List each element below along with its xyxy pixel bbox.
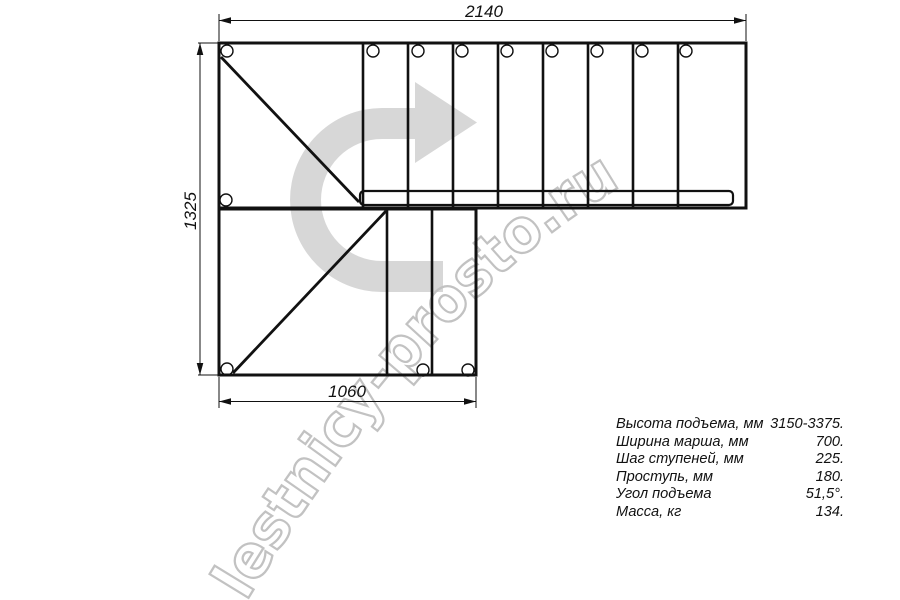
spec-label: Шаг ступеней, мм bbox=[616, 451, 744, 469]
mount-hole bbox=[456, 45, 468, 57]
dimension-left-label: 1325 bbox=[181, 192, 200, 230]
spec-label: Проступь, мм bbox=[616, 469, 713, 487]
mount-hole bbox=[412, 45, 424, 57]
spec-row: Масса, кг 134. bbox=[616, 504, 844, 522]
mount-hole bbox=[501, 45, 513, 57]
spec-label: Масса, кг bbox=[616, 504, 681, 522]
mount-hole bbox=[591, 45, 603, 57]
dimension-top-label: 2140 bbox=[464, 2, 503, 21]
spec-value: 51,5°. bbox=[806, 486, 844, 504]
dimension-top: 2140 bbox=[219, 2, 746, 41]
dimension-bottom-label: 1060 bbox=[328, 382, 366, 401]
mount-hole bbox=[680, 45, 692, 57]
mount-hole bbox=[546, 45, 558, 57]
mount-hole bbox=[221, 363, 233, 375]
dimension-arrow bbox=[219, 398, 231, 405]
mount-hole bbox=[221, 45, 233, 57]
spec-row: Угол подъема 51,5°. bbox=[616, 486, 844, 504]
dimension-arrow bbox=[197, 43, 204, 55]
dimension-left: 1325 bbox=[181, 43, 218, 375]
mount-hole bbox=[220, 194, 232, 206]
mount-hole bbox=[636, 45, 648, 57]
spec-row: Шаг ступеней, мм 225. bbox=[616, 451, 844, 469]
spec-label: Высота подъема, мм bbox=[616, 416, 764, 434]
spec-value: 225. bbox=[816, 451, 844, 469]
spec-value: 134. bbox=[816, 504, 844, 522]
spec-label: Угол подъема bbox=[616, 486, 711, 504]
spec-row: Высота подъема, мм 3150-3375. bbox=[616, 416, 844, 434]
spec-row: Проступь, мм 180. bbox=[616, 469, 844, 487]
dimension-arrow bbox=[197, 363, 204, 375]
spec-value: 3150-3375. bbox=[770, 416, 844, 434]
spec-value: 700. bbox=[816, 434, 844, 452]
spec-label: Ширина марша, мм bbox=[616, 434, 749, 452]
spec-value: 180. bbox=[816, 469, 844, 487]
dimension-arrow bbox=[734, 17, 746, 24]
specs-table: Высота подъема, мм 3150-3375. Ширина мар… bbox=[616, 416, 844, 522]
dimension-arrow bbox=[464, 398, 476, 405]
dimension-arrow bbox=[219, 17, 231, 24]
stair-plan-page: { "watermark": { "text": "lestnicy-prost… bbox=[0, 0, 900, 600]
mount-hole bbox=[367, 45, 379, 57]
spec-row: Ширина марша, мм 700. bbox=[616, 434, 844, 452]
